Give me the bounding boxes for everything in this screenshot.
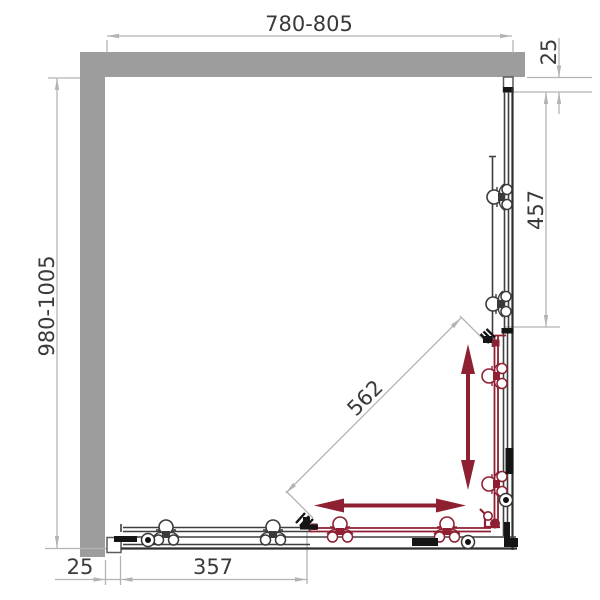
roller-icon	[260, 520, 286, 545]
floor-guide-icon	[500, 494, 513, 507]
roller-icon	[153, 520, 179, 545]
slide-direction-arrow-horizontal	[314, 499, 466, 513]
fixed-glass-end-cap	[502, 328, 514, 334]
door-hook	[493, 340, 500, 347]
dim-right-fixed-panel-label: 457	[524, 190, 548, 230]
door-corner-connector	[480, 509, 500, 528]
dimension-top-width: 780-805	[107, 12, 513, 53]
right-inner-guide	[489, 157, 496, 348]
door-handle-right	[506, 448, 514, 474]
dim-left-depth-label: 980-1005	[35, 255, 59, 356]
track-bracket	[114, 536, 137, 542]
dimension-diagonal-entry: 562	[286, 316, 487, 518]
dim-top-width-label: 780-805	[265, 12, 353, 36]
wall-top	[80, 52, 525, 77]
dimension-top-wall-profile: 25	[514, 38, 592, 114]
roller-icon	[486, 291, 511, 317]
slide-direction-arrow-vertical	[461, 344, 475, 490]
bottom-panel-assembly	[107, 513, 517, 553]
walls	[80, 52, 525, 557]
technical-drawing-canvas: 780-805 980-1005 25 457 562 25 357	[0, 0, 600, 600]
right-panel-assembly	[481, 77, 514, 550]
dim-bottom-wall-profile-label: 25	[67, 555, 94, 579]
wall-left	[80, 52, 105, 557]
dim-diagonal-entry-label: 562	[342, 375, 387, 420]
shower-enclosure-plan: 780-805 980-1005 25 457 562 25 357	[0, 0, 600, 600]
dim-bottom-fixed-panel-label: 357	[193, 555, 233, 579]
slide-direction-arrows	[314, 344, 475, 513]
floor-guide-icon	[462, 536, 475, 549]
dim-top-wall-profile-label: 25	[537, 39, 561, 66]
bottom-fixed-glass	[121, 524, 312, 532]
roller-icon	[327, 517, 353, 542]
door-handle-bottom	[412, 538, 438, 546]
floor-guide-icon	[142, 534, 155, 547]
